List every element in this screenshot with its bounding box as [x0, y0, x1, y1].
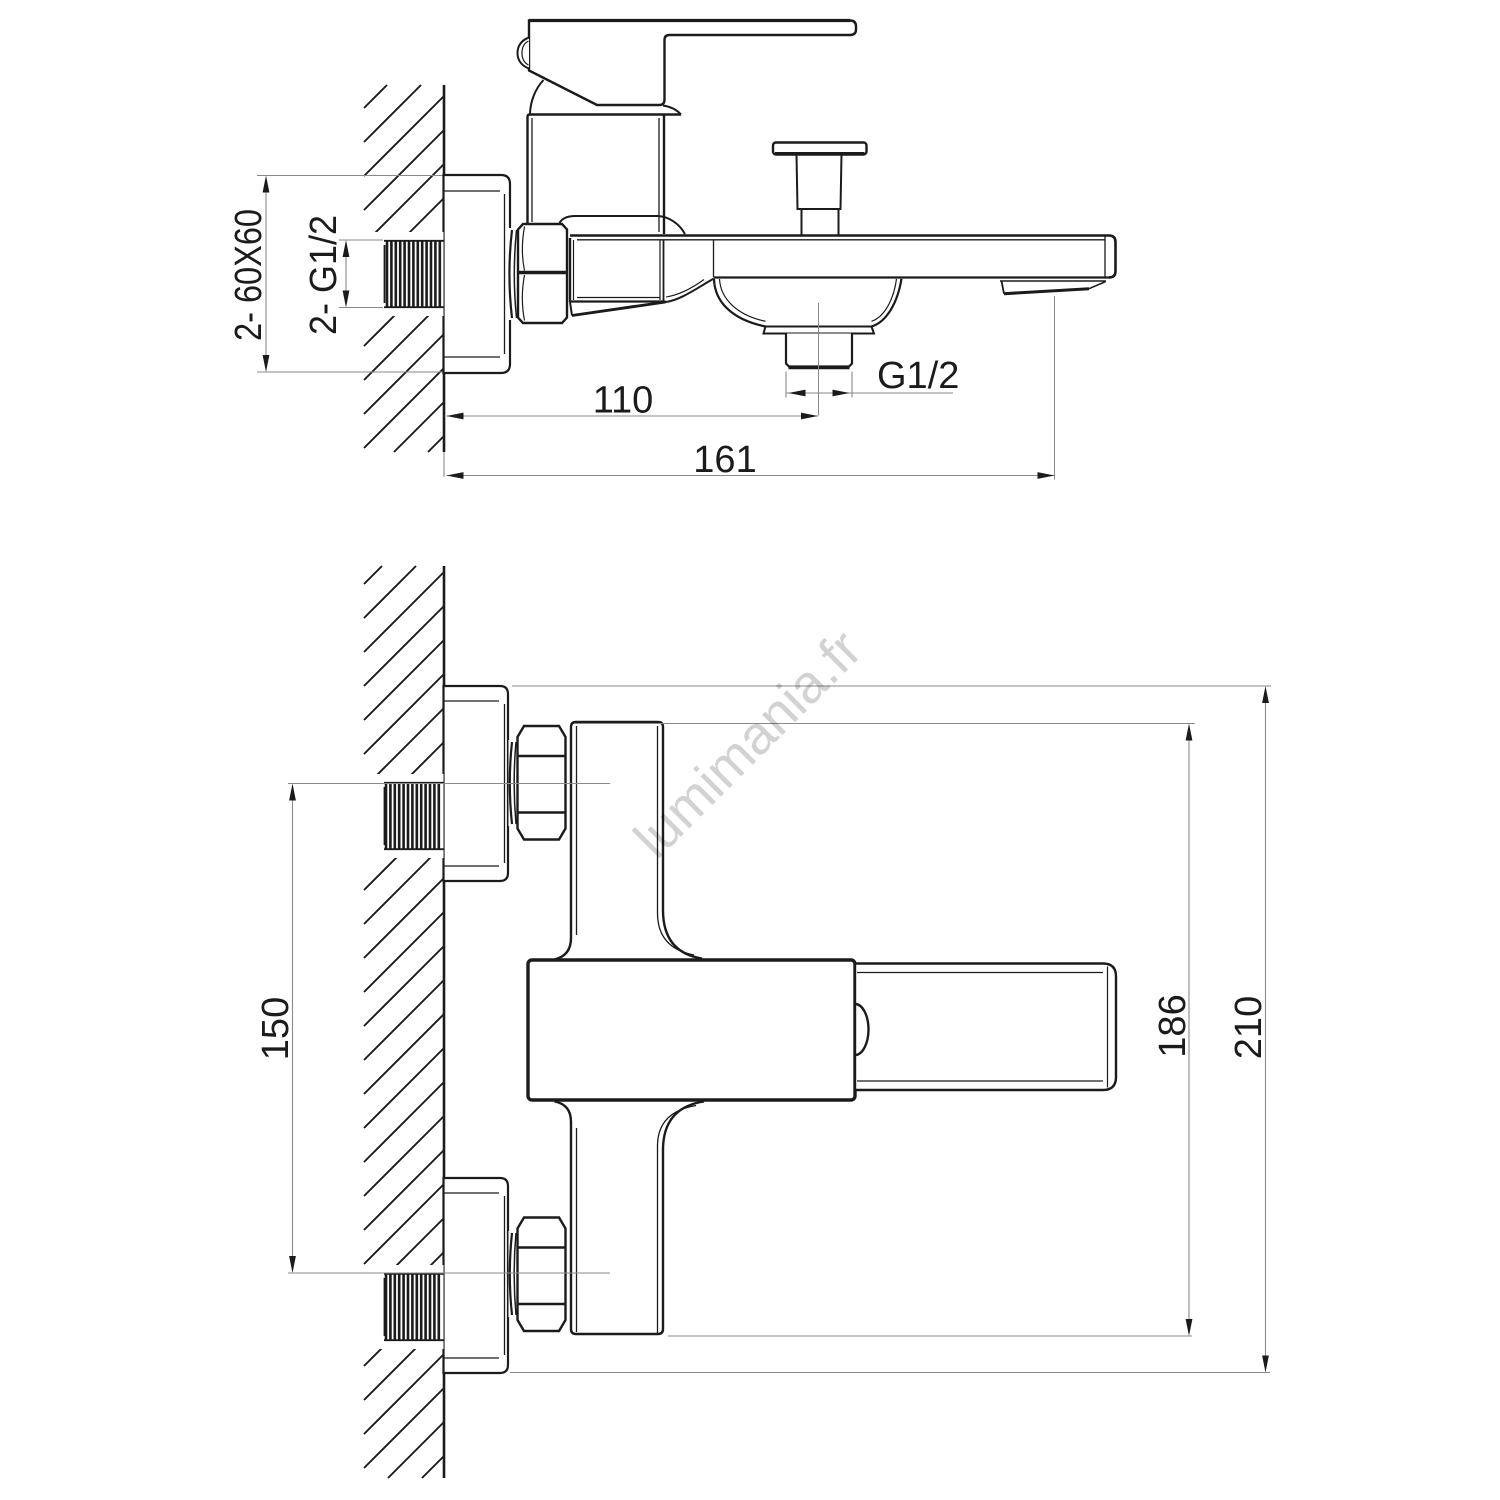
svg-text:2- 60X60: 2- 60X60: [228, 209, 270, 341]
svg-text:210: 210: [1228, 996, 1270, 1059]
svg-text:110: 110: [593, 380, 654, 422]
svg-text:161: 161: [693, 439, 756, 481]
svg-text:G1/2: G1/2: [877, 355, 959, 397]
svg-text:2- G1/2: 2- G1/2: [303, 215, 345, 335]
svg-text:150: 150: [255, 997, 297, 1060]
svg-text:186: 186: [1152, 994, 1194, 1057]
